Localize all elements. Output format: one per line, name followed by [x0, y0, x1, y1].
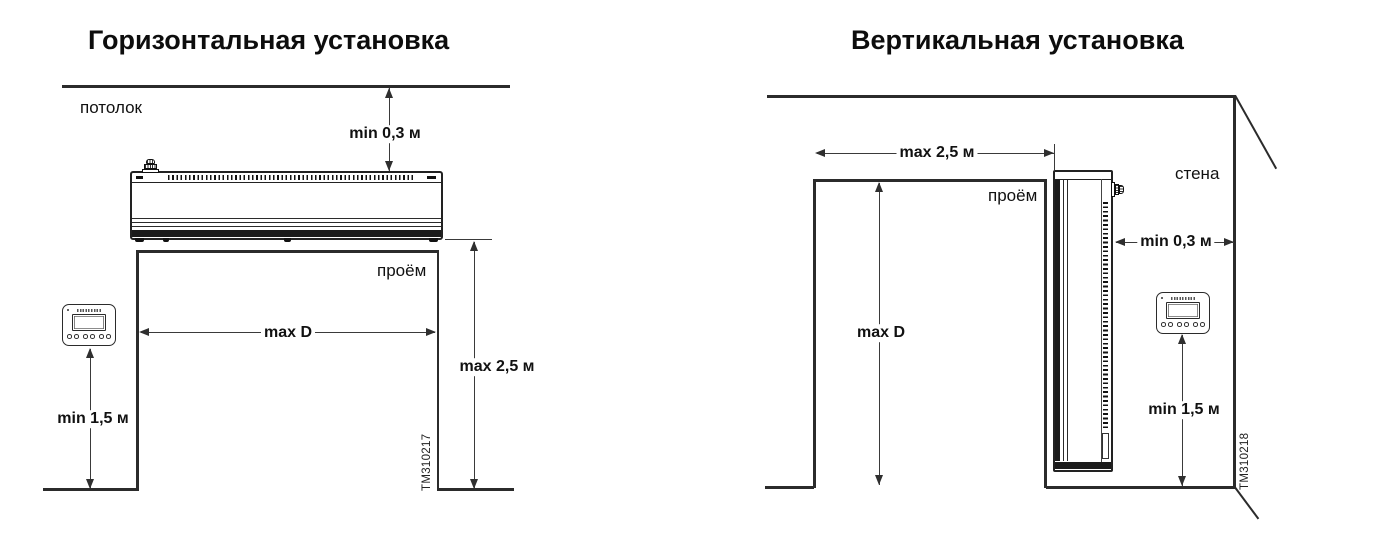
dim-label-opening-height: max D: [854, 324, 908, 342]
floor-line: [765, 486, 814, 489]
arrow-right-icon: [1044, 149, 1054, 157]
controller-button: [74, 334, 80, 339]
controller-display: [1166, 302, 1200, 319]
brand-mark-icon: [1171, 297, 1195, 301]
ceiling-line: [62, 85, 510, 88]
extension-line: [445, 239, 492, 240]
air-curtain-horizontal: [130, 171, 443, 240]
mount-foot: [284, 238, 291, 242]
cable-gland-icon: [140, 159, 160, 173]
dim-label-opening-width: max 2,5 м: [897, 144, 978, 162]
floor-line: [438, 488, 514, 491]
controller-display: [72, 314, 106, 331]
floor-line: [1046, 486, 1236, 489]
air-curtain-vertical: [1053, 170, 1113, 472]
drawing-code: TM310217: [421, 434, 433, 491]
controller-button: [90, 334, 96, 339]
arrow-down-icon: [875, 475, 883, 485]
installation-diagram: Горизонтальная установка потолок min 0,3…: [0, 0, 1380, 537]
panel-latch-icon: [427, 176, 436, 179]
remote-controller: [1156, 292, 1210, 334]
arrow-left-icon: [139, 328, 149, 336]
dim-label-opening-width: max D: [261, 324, 315, 342]
controller-button: [106, 334, 112, 339]
controller-button: [1200, 322, 1206, 327]
remote-controller: [62, 304, 116, 346]
air-intake-grille: [1103, 202, 1108, 430]
led-indicator-icon: [1161, 297, 1163, 299]
arrow-right-icon: [1224, 238, 1234, 246]
wall-top-line: [767, 95, 1236, 98]
mount-foot: [429, 238, 438, 242]
panel-edge-line: [1101, 179, 1102, 462]
vertical-installation-title: Вертикальная установка: [851, 25, 1184, 56]
arrow-up-icon: [470, 241, 478, 251]
air-outlet-slot: [132, 230, 441, 237]
controller-button: [1193, 322, 1199, 327]
dim-label-controller-height: min 1,5 м: [1145, 401, 1222, 419]
wall-corner-diagonal: [1235, 95, 1277, 169]
led-indicator-icon: [67, 309, 69, 311]
wall-label: стена: [1175, 164, 1219, 184]
unit-bottom-cap: [1055, 462, 1111, 469]
dim-label-ceiling-gap: min 0,3 м: [346, 125, 423, 143]
brand-mark-icon: [77, 309, 101, 313]
dim-label-wall-gap: min 0,3 м: [1137, 233, 1214, 251]
arrow-down-icon: [385, 161, 393, 171]
grille-end-cap: [1102, 433, 1109, 459]
arrow-up-icon: [875, 182, 883, 192]
arrow-left-icon: [1115, 238, 1125, 246]
dim-label-mount-height: max 2,5 м: [457, 358, 538, 376]
arrow-up-icon: [1178, 334, 1186, 344]
opening-label: проём: [377, 261, 426, 281]
controller-button: [1161, 322, 1167, 327]
unit-top-cap: [1055, 172, 1111, 180]
doorway-right-jamb-line: [437, 250, 440, 491]
floor-corner-diagonal: [1235, 487, 1259, 519]
doorway-right-jamb-line: [1044, 179, 1047, 488]
doorway-left-jamb-line: [813, 179, 816, 488]
controller-button: [1177, 322, 1183, 327]
controller-button: [67, 334, 73, 339]
cable-gland-icon: [1111, 181, 1124, 197]
doorway-lintel-line: [136, 250, 439, 253]
controller-button: [83, 334, 89, 339]
arrow-down-icon: [1178, 476, 1186, 486]
wall-edge-line: [1233, 95, 1236, 489]
horizontal-installation-title: Горизонтальная установка: [88, 25, 449, 56]
doorway-lintel-line: [813, 179, 1046, 182]
controller-button: [1168, 322, 1174, 327]
floor-line: [43, 488, 137, 491]
air-outlet-slot: [1055, 180, 1060, 461]
arrow-up-icon: [385, 88, 393, 98]
arrow-right-icon: [426, 328, 436, 336]
opening-label: проём: [988, 186, 1037, 206]
drawing-code: TM310218: [1239, 433, 1251, 490]
mount-foot: [135, 238, 144, 242]
controller-button: [1184, 322, 1190, 327]
air-intake-panel: [132, 173, 441, 183]
controller-buttons: [1157, 322, 1209, 327]
arrow-up-icon: [86, 348, 94, 358]
dim-label-controller-height: min 1,5 м: [54, 410, 131, 428]
panel-latch-icon: [136, 176, 143, 179]
controller-buttons: [63, 334, 115, 339]
doorway-left-jamb-line: [136, 250, 139, 491]
ceiling-label: потолок: [80, 98, 142, 118]
air-intake-grille: [168, 175, 415, 180]
mount-foot: [163, 238, 169, 242]
extension-line: [1054, 144, 1055, 170]
air-outlet-vanes: [132, 218, 441, 230]
controller-button: [99, 334, 105, 339]
arrow-left-icon: [815, 149, 825, 157]
